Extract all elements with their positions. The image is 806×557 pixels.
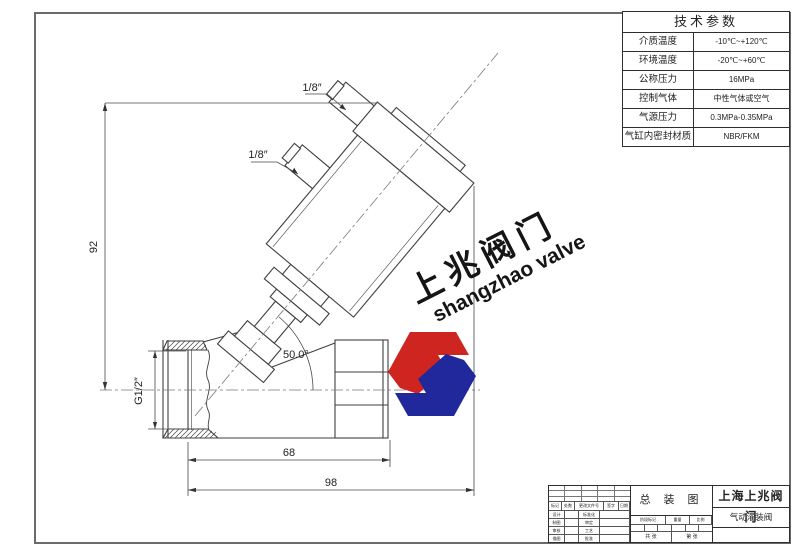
stage-label: 比例 bbox=[690, 516, 712, 524]
param-value: NBR/FKM bbox=[694, 128, 789, 146]
signature-row: 描图 批准 bbox=[549, 535, 630, 542]
signature-row: 审核 工艺 bbox=[549, 527, 630, 535]
drawing-type-area: 总 装 图 阶段标记 重量 比例 共 张 第 张 bbox=[631, 486, 713, 542]
sheet-total-label: 共 张 bbox=[631, 532, 672, 542]
tech-table-title: 技术参数 bbox=[623, 12, 789, 33]
valve-body bbox=[163, 326, 388, 438]
tech-parameters-table: 技术参数 介质温度 -10℃~+120℃ 环境温度 -20℃~+60℃ 公称压力… bbox=[622, 11, 790, 147]
sign-label: 描图 bbox=[549, 535, 565, 542]
dim-68-label: 68 bbox=[283, 447, 295, 459]
pilot-top-label: 1/8″ bbox=[302, 82, 321, 94]
sign-label: 制图 bbox=[549, 519, 565, 526]
sign-label: 批准 bbox=[579, 535, 600, 542]
signature-row: 设计 标准化 bbox=[549, 511, 630, 519]
param-label: 介质温度 bbox=[623, 33, 694, 51]
sign-label: 设计 bbox=[549, 511, 565, 518]
stage-header: 阶段标记 重量 比例 bbox=[631, 516, 712, 525]
title-block: 标记 处数 更改文件号 签字 日期 设计 标准化 制图 审定 审核 bbox=[548, 485, 790, 543]
rev-col-label: 日期 bbox=[619, 502, 630, 510]
company-area: 上海上兆阀门 气动灌装阀 bbox=[713, 486, 789, 542]
param-label: 公称压力 bbox=[623, 71, 694, 89]
param-value: 0.3MPa-0.35MPa bbox=[694, 109, 789, 127]
tech-param-row: 环境温度 -20℃~+60℃ bbox=[623, 52, 789, 71]
sheet-number-label: 第 张 bbox=[672, 532, 712, 542]
tech-param-row: 控制气体 中性气体或空气 bbox=[623, 90, 789, 109]
sign-label: 审定 bbox=[579, 519, 600, 526]
param-label: 气缸内密封材质 bbox=[623, 128, 694, 146]
dim-angle-label: 50.0° bbox=[283, 349, 309, 361]
tech-param-row: 气源压力 0.3MPa-0.35MPa bbox=[623, 109, 789, 128]
sign-label: 标准化 bbox=[579, 511, 600, 518]
dim-92-label: 92 bbox=[88, 241, 100, 253]
tech-param-row: 气缸内密封材质 NBR/FKM bbox=[623, 128, 789, 146]
rev-col-label: 处数 bbox=[562, 502, 575, 510]
rev-col-label: 更改文件号 bbox=[575, 502, 604, 510]
param-value: -10℃~+120℃ bbox=[694, 33, 789, 51]
param-value: 16MPa bbox=[694, 71, 789, 89]
param-value: 中性气体或空气 bbox=[694, 90, 789, 108]
pilot-side-label: 1/8″ bbox=[248, 149, 267, 161]
rev-col-label: 签字 bbox=[604, 502, 619, 510]
param-label: 气源压力 bbox=[623, 109, 694, 127]
drawing-number-cell bbox=[713, 528, 789, 542]
stage-label: 重量 bbox=[666, 516, 690, 524]
dim-98-label: 98 bbox=[325, 477, 337, 489]
param-label: 环境温度 bbox=[623, 52, 694, 70]
revision-header: 标记 处数 更改文件号 签字 日期 bbox=[549, 502, 630, 511]
param-value: -20℃~+60℃ bbox=[694, 52, 789, 70]
drawing-sheet: 92 G1/2″ 68 98 50.0° 1/8″ 1/8″ 上兆阀门 shan… bbox=[0, 0, 806, 557]
stage-boxes bbox=[631, 525, 712, 532]
sign-label: 工艺 bbox=[579, 527, 600, 534]
sheet-info-row: 共 张 第 张 bbox=[631, 532, 712, 542]
sign-label: 审核 bbox=[549, 527, 565, 534]
product-name: 气动灌装阀 bbox=[713, 508, 789, 528]
drawing-type: 总 装 图 bbox=[631, 486, 712, 516]
company-name: 上海上兆阀门 bbox=[713, 486, 789, 508]
signature-row: 制图 审定 bbox=[549, 519, 630, 527]
company-logo bbox=[376, 324, 488, 424]
rev-col-label: 标记 bbox=[549, 502, 562, 510]
revision-grid bbox=[549, 486, 630, 502]
tech-param-row: 公称压力 16MPa bbox=[623, 71, 789, 90]
revision-area: 标记 处数 更改文件号 签字 日期 设计 标准化 制图 审定 审核 bbox=[549, 486, 631, 542]
stage-label: 阶段标记 bbox=[631, 516, 666, 524]
param-label: 控制气体 bbox=[623, 90, 694, 108]
tech-param-row: 介质温度 -10℃~+120℃ bbox=[623, 33, 789, 52]
dim-port-thread-label: G1/2″ bbox=[133, 377, 145, 405]
